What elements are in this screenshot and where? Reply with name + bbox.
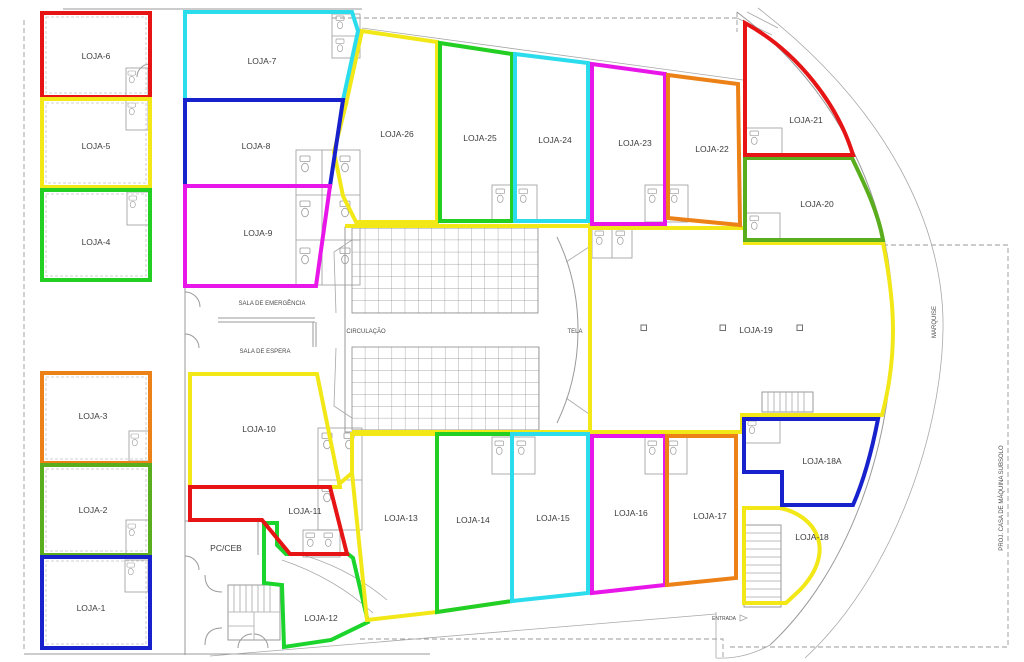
toilet-icon: [616, 231, 625, 244]
wc-loja18a: [745, 419, 780, 443]
unit-label-loja-12: LOJA-12: [304, 613, 338, 623]
unit-label-loja-26: LOJA-26: [380, 129, 414, 139]
toilet-icon: [495, 441, 504, 454]
unit-label-loja-6: LOJA-6: [82, 51, 111, 61]
room-label-pc-ceb: PC/CEB: [210, 543, 242, 553]
toilet-icon: [128, 71, 136, 83]
toilet-icon: [128, 524, 136, 536]
toilet-icon: [595, 231, 604, 244]
wc-loja3: [129, 431, 150, 461]
interior-walls: [137, 12, 316, 655]
toilet-icon: [748, 421, 756, 434]
toilet-icon: [306, 533, 315, 546]
unit-label-loja-8: LOJA-8: [242, 141, 271, 151]
toilet-icon: [648, 441, 657, 454]
unit-label-loja-11: LOJA-11: [289, 506, 322, 516]
room-labels: SALA DE EMERGÊNCIA SALA DE ESPERA CIRCUL…: [210, 299, 1005, 622]
toilet-icon: [324, 533, 333, 546]
left-shops-dashed-insets: [46, 17, 146, 644]
room-label-sala-de-espera: SALA DE ESPERA: [239, 349, 290, 355]
toilet-icon: [648, 189, 657, 202]
unit-label-loja-13: LOJA-13: [384, 513, 418, 523]
toilet-icon: [300, 248, 310, 264]
unit-label-loja-2: LOJA-2: [79, 505, 108, 515]
unit-label-loja-22: LOJA-22: [695, 144, 729, 154]
entrance-ramp-curves: [282, 553, 387, 613]
top-shops-wall-line: [362, 28, 743, 80]
toilet-icon: [336, 39, 344, 52]
stairs-east-upper: [762, 392, 813, 412]
stairwell-southwest-steps: [228, 585, 280, 640]
toilet-icon: [127, 563, 135, 575]
right-dashed-site-rect: [730, 245, 1008, 647]
unit-label-loja-5: LOJA-5: [82, 141, 111, 151]
unit-label-loja-10: LOJA-10: [242, 424, 276, 434]
unit-label-loja-9: LOJA-9: [244, 228, 273, 238]
unit-outline-loja-25: [440, 43, 512, 221]
room-label-circulacao: CIRCULAÇÃO: [346, 328, 386, 335]
unit-label-loja-7: LOJA-7: [248, 56, 277, 66]
unit-label-loja-18a: LOJA-18A: [802, 456, 842, 466]
toilet-icon: [300, 201, 310, 217]
stairs-east-lower: [744, 525, 781, 607]
column-marker: [797, 325, 803, 331]
marquise-arc: [758, 8, 943, 658]
toilet-icon: [519, 189, 528, 202]
floor-plan-svg: LOJA-1 LOJA-2 LOJA-3 LOJA-4 LOJA-5 LOJA-…: [0, 0, 1024, 662]
toilet-icon: [750, 131, 759, 144]
unit-label-loja-3: LOJA-3: [79, 411, 108, 421]
unit-label-loja-4: LOJA-4: [82, 237, 111, 247]
entrada-arrow-icon: [740, 615, 747, 621]
unit-label-loja-24: LOJA-24: [538, 135, 572, 145]
unit-label-loja-19: LOJA-19: [739, 325, 773, 335]
room-label-tela: TELA: [567, 329, 582, 335]
toilet-icon: [669, 441, 678, 454]
unit-outline-loja-13: [352, 434, 437, 620]
room-label-proj-casa-de-maquina-subsolo: PROJ. CASA DE MÁQUINA SUBSOLO: [998, 445, 1005, 551]
stairs-east-lower-steps: [744, 533, 781, 597]
unit-label-loja-23: LOJA-23: [618, 138, 652, 148]
unit-label-loja-16: LOJA-16: [614, 508, 648, 518]
unit-label-loja-21: LOJA-21: [789, 115, 823, 125]
unit-label-loja-25: LOJA-25: [463, 133, 497, 143]
toilet-icon: [496, 189, 505, 202]
sidewalk-edge-lines: [210, 612, 770, 658]
waiting-room-walls: [218, 318, 316, 347]
unit-label-loja-14: LOJA-14: [456, 515, 490, 525]
toilet-icon: [340, 156, 350, 172]
cinema-seating-grid-lower: [352, 347, 539, 430]
cinema-seating-grid-upper: [352, 228, 538, 313]
toilet-icon: [128, 103, 136, 115]
bottom-dashed-site-line: [360, 639, 723, 660]
stairs-east-upper-steps: [768, 392, 804, 412]
toilet-icon: [517, 441, 526, 454]
top-dashed-site-line: [332, 12, 737, 32]
toilet-icon: [670, 189, 679, 202]
unit-label-loja-18: LOJA-18: [795, 532, 829, 542]
toilet-icon: [300, 156, 310, 172]
toilet-icon: [131, 434, 139, 446]
room-label-marquise: MARQUISE: [932, 306, 938, 338]
room-label-entrada: ENTRADA: [712, 616, 737, 622]
unit-label-loja-17: LOJA-17: [693, 511, 727, 521]
wc-loja1: [125, 560, 148, 592]
wc-core-upper: [296, 150, 360, 285]
column-markers: [641, 325, 803, 331]
column-marker: [720, 325, 726, 331]
toilet-icon: [750, 216, 759, 229]
unit-outline-loja-4: [42, 190, 150, 280]
wc-loja5: [126, 100, 148, 130]
corridor-door-arcs: [205, 575, 268, 648]
unit-labels: LOJA-1 LOJA-2 LOJA-3 LOJA-4 LOJA-5 LOJA-…: [77, 51, 842, 623]
wc-loja4: [127, 192, 150, 225]
room-label-sala-de-emergencia: SALA DE EMERGÊNCIA: [238, 299, 305, 307]
unit-outline-loja-26: [334, 31, 437, 222]
toilet-icon: [129, 196, 137, 208]
unit-label-loja-1: LOJA-1: [77, 603, 106, 613]
unit-label-loja-20: LOJA-20: [800, 199, 834, 209]
unit-label-loja-15: LOJA-15: [536, 513, 570, 523]
column-marker: [641, 325, 647, 331]
